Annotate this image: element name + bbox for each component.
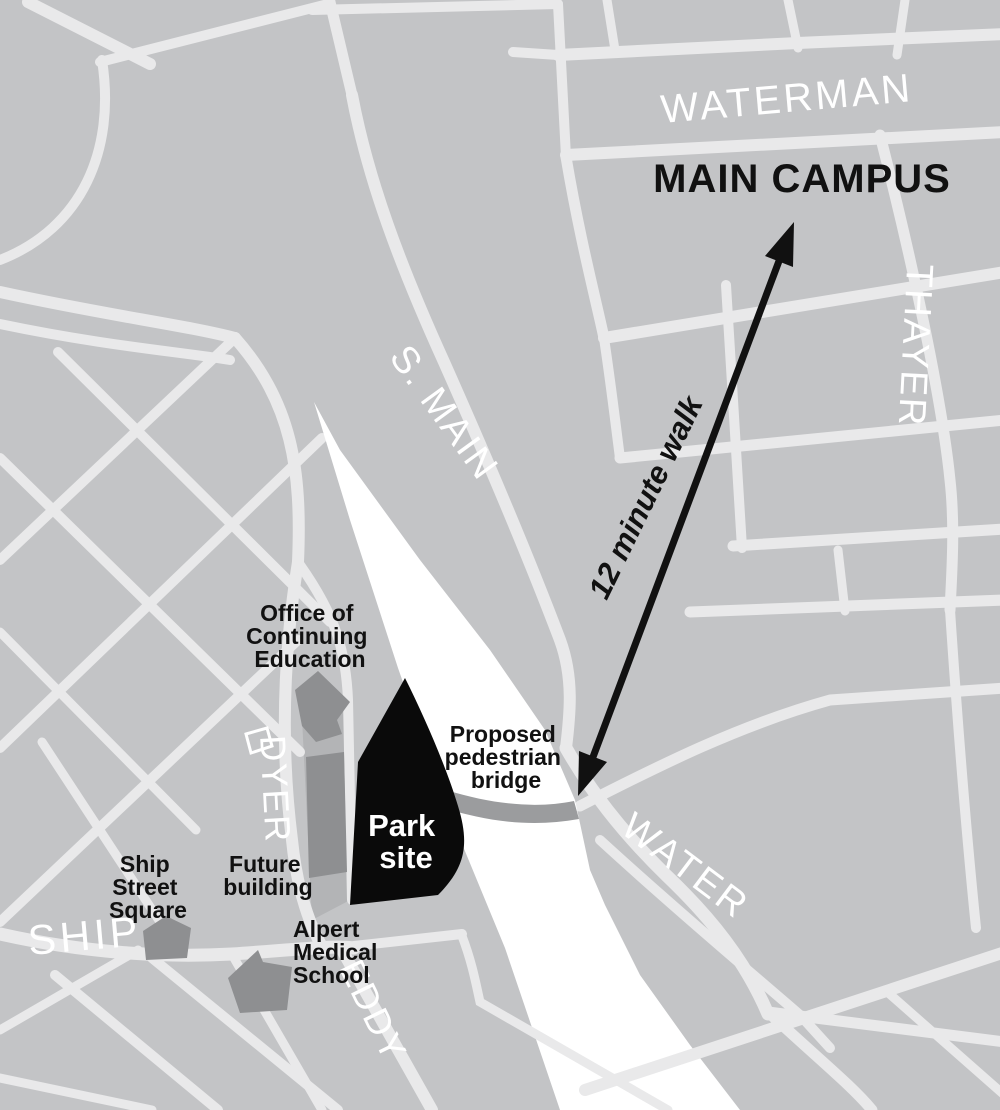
map-svg: WATERMAN THAYER S. MAIN WATER SHIP DYER …	[0, 0, 1000, 1110]
future-building-label: Future building	[223, 851, 312, 900]
street-segment	[513, 52, 558, 55]
street-segment	[312, 4, 558, 10]
future-building-shape	[306, 752, 347, 878]
office-label: Office of Continuing Education	[246, 600, 374, 672]
campus-park-map: WATERMAN THAYER S. MAIN WATER SHIP DYER …	[0, 0, 1000, 1110]
street-label-thayer: THAYER	[890, 263, 940, 428]
main-campus-label: MAIN CAMPUS	[653, 157, 951, 201]
ship-street-square-label: Ship Street Square	[109, 851, 187, 923]
street-label-dyer: DYER	[252, 734, 299, 844]
park-site-label: Park site	[368, 808, 444, 875]
